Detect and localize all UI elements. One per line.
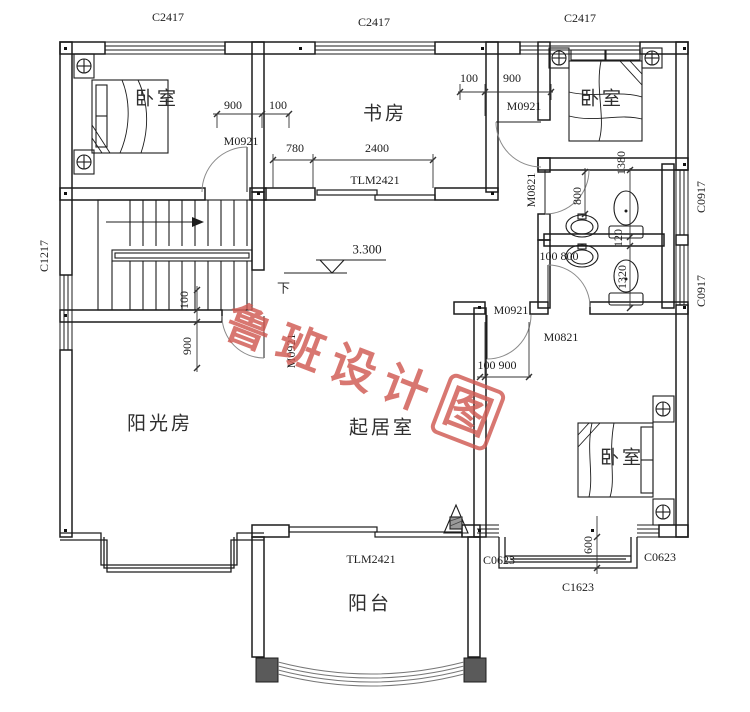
dim-tr-900: 900: [503, 72, 521, 84]
door-label-bedroom-tl: M0921: [224, 135, 259, 147]
window-label-c2417-right: C2417: [564, 12, 596, 24]
dim-sun-100: 100: [178, 291, 190, 309]
elevation-marker: [284, 260, 386, 273]
door-bedroom-tl: [202, 147, 247, 192]
window-label-c0917-upper: C0917: [695, 181, 707, 213]
balcony-sliding-door: [289, 527, 462, 537]
dim-tl-900: 900: [224, 99, 242, 111]
lamp-icon: [77, 155, 91, 169]
sunroom-glass-wall: [60, 533, 264, 572]
window-label-c1217: C1217: [38, 240, 50, 272]
room-label-bedroom-tr: 卧室: [580, 90, 624, 109]
door-bedroom-br: [487, 315, 531, 359]
window-c0917-lower: [676, 245, 688, 305]
door-label-bedroom-br: M0921: [494, 304, 529, 316]
bay-window-c1623: [499, 537, 637, 568]
dim-study-780: 780: [286, 142, 304, 154]
dim-bath1-1380: 1380: [615, 151, 627, 175]
dim-bath2-door: 100 800: [540, 250, 579, 262]
window-label-c1623: C1623: [562, 581, 594, 593]
elevation-label: 3.300: [352, 243, 381, 256]
lamp-icon: [645, 51, 659, 65]
dim-bath2-1320: 1320: [616, 265, 628, 289]
room-label-living: 起居室: [349, 419, 415, 438]
stair-direction-arrow: [106, 217, 204, 227]
door-label-bedroom-tr: M0921: [507, 100, 542, 112]
window-c0623-right: [637, 525, 659, 537]
stairs: [98, 200, 252, 310]
dim-tl-100: 100: [269, 99, 287, 111]
bed-tl: [74, 54, 168, 174]
dim-wall-120: 120: [612, 229, 624, 247]
lamp-icon: [656, 402, 670, 416]
dim-bay-600: 600: [582, 536, 594, 554]
room-label-bedroom-br: 卧室: [600, 449, 644, 468]
door-bath2: [548, 265, 590, 307]
sink-icon-bath1: [566, 214, 598, 237]
window-label-c2417-left: C2417: [152, 11, 184, 23]
window-c1217: [60, 275, 72, 350]
door-label-study-sliding: TLM2421: [350, 174, 399, 186]
door-label-balcony-sliding: TLM2421: [346, 553, 395, 565]
study-sliding-door: [317, 190, 435, 200]
dim-study-2400: 2400: [365, 142, 389, 154]
lamp-icon: [77, 59, 91, 73]
dim-tr-100: 100: [460, 72, 478, 84]
lamp-icon: [656, 505, 670, 519]
door-label-bath2: M0821: [544, 331, 579, 343]
window-c2417-mid: [315, 42, 435, 54]
room-label-bedroom-tl: 卧室: [135, 90, 179, 109]
window-label-c0623-right: C0623: [644, 551, 676, 563]
stairs-down-label: 下: [277, 283, 291, 296]
dim-sun-900: 900: [181, 337, 193, 355]
dim-br-door: 100 900: [478, 359, 517, 371]
flue-symbol: [444, 505, 468, 533]
door-bedroom-tr: [496, 122, 541, 167]
lamp-icon: [552, 51, 566, 65]
room-label-sunroom: 阳光房: [127, 415, 193, 434]
window-label-c0623-left: C0623: [483, 554, 515, 566]
window-label-c0917-lower: C0917: [695, 275, 707, 307]
room-label-study: 书房: [363, 105, 407, 124]
dim-bath1-800: 800: [571, 187, 583, 205]
window-c0917-upper: [676, 170, 688, 235]
window-c2417-left: [105, 42, 225, 54]
balcony-railing: [256, 658, 486, 686]
window-label-c2417-mid: C2417: [358, 16, 390, 28]
room-label-balcony: 阳台: [348, 595, 392, 614]
floor-plan: C2417 C2417 C2417 C1217 C0917 C0917 C062…: [0, 0, 750, 712]
door-label-bath1: M0821: [525, 173, 537, 208]
